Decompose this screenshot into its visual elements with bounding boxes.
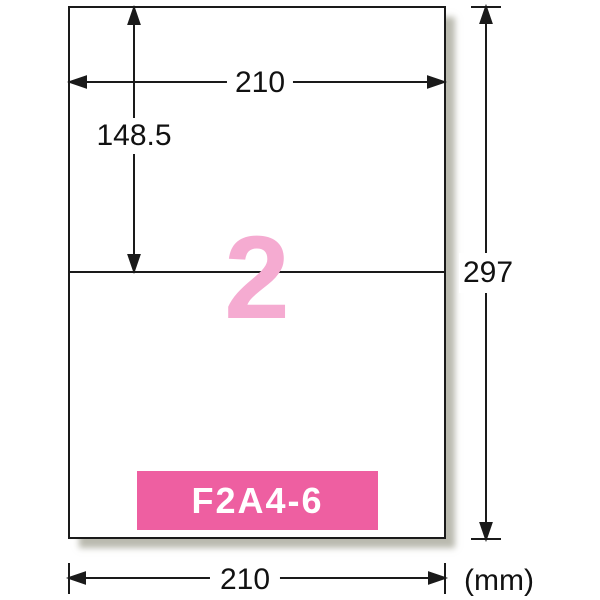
product-code-banner: F2A4-6: [137, 471, 378, 530]
arrow-up-icon: [481, 7, 492, 23]
dim-label-width-top: 210: [227, 67, 293, 99]
dim-label-width-bottom: 210: [210, 564, 280, 596]
arrow-right-icon: [429, 573, 445, 584]
dim-label-half-height: 148.5: [91, 118, 176, 154]
diagram-canvas: 2 F2A4-6 210 148.5 297 210 (mm): [0, 0, 600, 600]
arrow-left-icon: [69, 573, 85, 584]
dim-label-full-height: 297: [459, 253, 517, 293]
product-code-label: F2A4-6: [191, 480, 323, 522]
arrow-down-icon: [481, 523, 492, 539]
label-count-numeral: 2: [70, 219, 444, 337]
dim-unit-label: (mm): [462, 565, 536, 597]
